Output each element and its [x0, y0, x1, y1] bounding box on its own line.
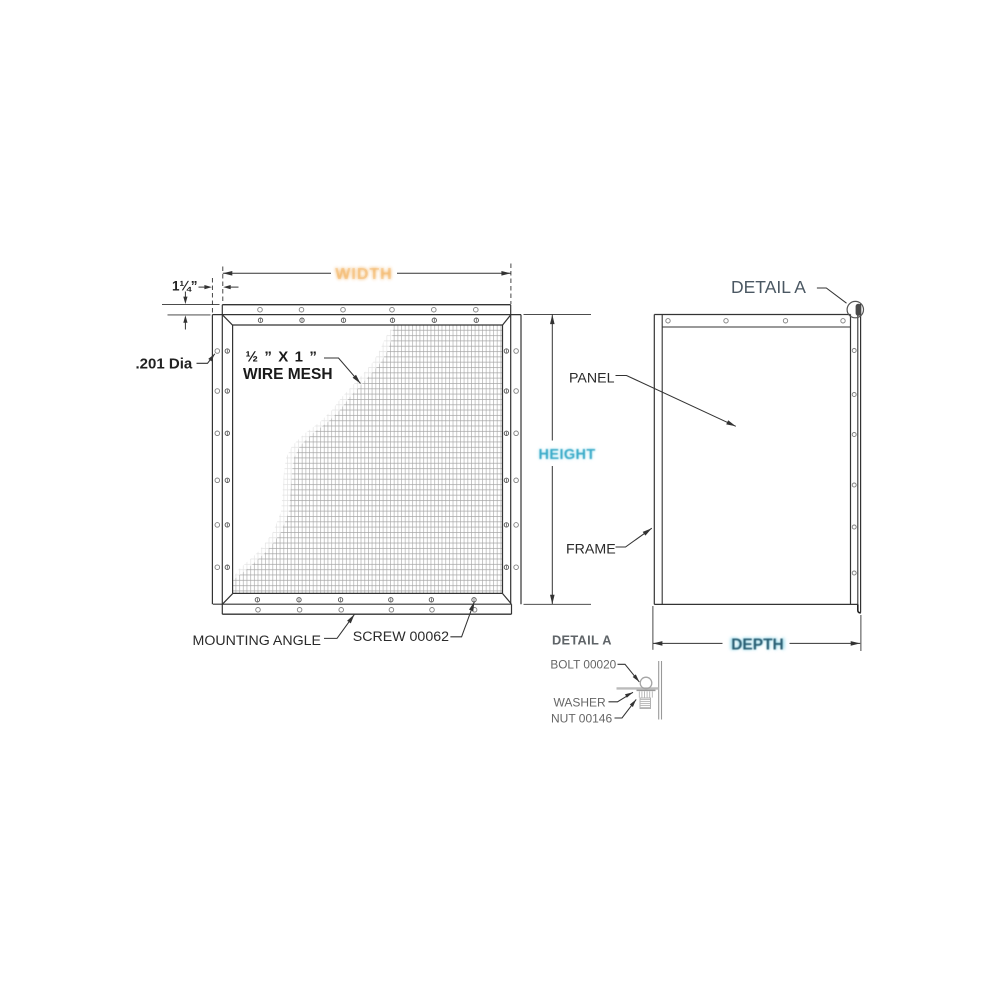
- svg-text:DETAIL A: DETAIL A: [552, 632, 612, 647]
- svg-text:MOUNTING ANGLE: MOUNTING ANGLE: [193, 633, 322, 649]
- svg-text:BOLT 00020: BOLT 00020: [550, 658, 616, 672]
- svg-text:WIDTH: WIDTH: [335, 266, 392, 283]
- svg-text:NUT 00146: NUT 00146: [551, 712, 612, 726]
- svg-text:SCREW 00062: SCREW 00062: [353, 629, 449, 645]
- svg-text:WASHER: WASHER: [554, 696, 607, 710]
- svg-text:1¼”: 1¼”: [172, 279, 198, 294]
- svg-text:FRAME: FRAME: [566, 542, 616, 558]
- svg-text:DEPTH: DEPTH: [731, 637, 784, 654]
- svg-text:DETAIL A: DETAIL A: [731, 277, 806, 297]
- svg-text:HEIGHT: HEIGHT: [539, 447, 596, 463]
- svg-text:½ ” X 1 ”: ½ ” X 1 ”: [246, 349, 318, 366]
- svg-text:WIRE MESH: WIRE MESH: [243, 366, 333, 383]
- svg-text:.201 Dia: .201 Dia: [136, 356, 193, 373]
- svg-text:PANEL: PANEL: [569, 370, 615, 386]
